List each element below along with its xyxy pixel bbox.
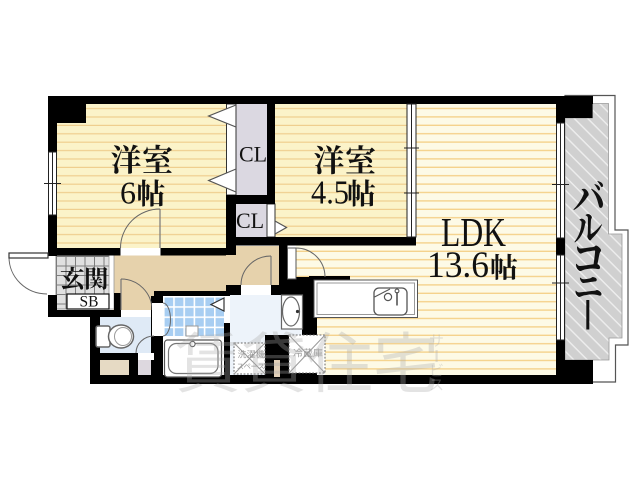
- svg-text:CL: CL: [236, 208, 264, 233]
- svg-text:4.5: 4.5: [311, 175, 349, 212]
- svg-text:CL: CL: [239, 142, 267, 167]
- svg-text:13.6: 13.6: [427, 245, 489, 286]
- svg-text:SB: SB: [80, 294, 99, 311]
- svg-text:6: 6: [120, 175, 136, 211]
